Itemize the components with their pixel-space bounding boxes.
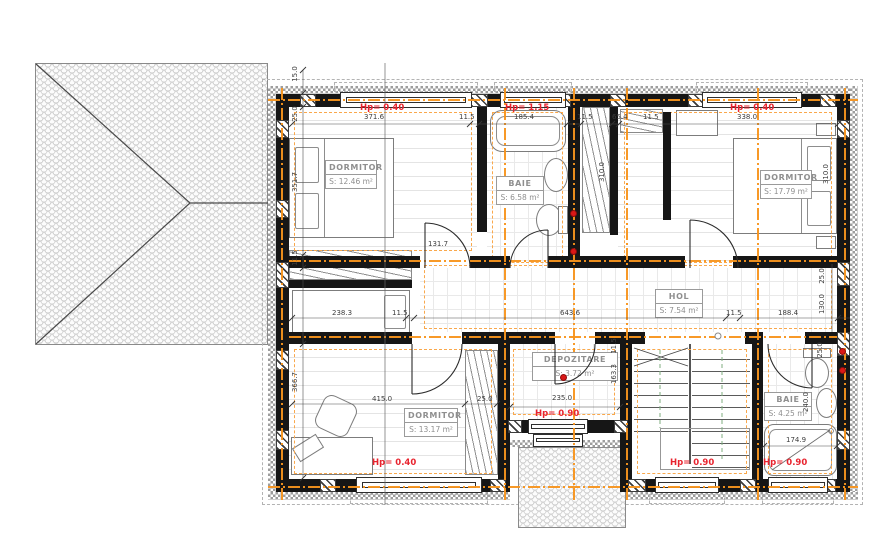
- dimension-label: 131.7: [428, 240, 448, 248]
- partition-wall: [289, 256, 420, 268]
- dimension-label: 415.0: [372, 395, 392, 403]
- dimension-label: 11.5: [726, 309, 742, 317]
- exterior-insulation: [268, 86, 276, 500]
- thermal-envelope: [294, 112, 472, 251]
- hp-label: Hp= 0.40: [360, 103, 404, 113]
- window: [655, 477, 719, 493]
- hp-label: Hp= 0.40: [730, 103, 774, 113]
- partition-wall: [663, 112, 671, 220]
- floor-plan-canvas: DORMITORS: 12.46 m² BAIES: 6.58 m² DORMI…: [0, 0, 892, 542]
- window: [528, 419, 588, 434]
- room-label-hol: HOLS: 7.54 m²: [655, 289, 703, 318]
- window: [768, 477, 828, 493]
- dimension-label: 11.5: [459, 113, 475, 121]
- partition-wall: [462, 332, 555, 344]
- outlet-dot: [839, 367, 846, 374]
- dimension-label: 25.0: [477, 395, 493, 403]
- thermal-envelope: [424, 265, 832, 329]
- axis-line: [268, 486, 858, 488]
- dimension-label: 11.5: [291, 250, 299, 266]
- dimension-label: 11.5: [392, 309, 408, 317]
- wall-hatch: [508, 420, 522, 433]
- room-label-dormitor-3: DORMITORS: 13.17 m²: [404, 408, 458, 437]
- room-label-dormitor-2: DORMITORS: 17.79 m²: [760, 170, 812, 199]
- exterior-insulation: [850, 86, 858, 500]
- dimension-label: 174.9: [786, 436, 806, 444]
- dimension-label: 15.0: [291, 66, 299, 82]
- dimension-label: 65.4: [612, 113, 628, 121]
- outlet-dot: [570, 248, 577, 255]
- hp-label: Hp= 0.90: [535, 409, 579, 419]
- dimension-label: 240.0: [802, 392, 810, 412]
- window-sill: [696, 82, 808, 92]
- dimension-label: 25.0: [291, 106, 299, 122]
- dimension-label: 188.4: [778, 309, 798, 317]
- dimension-label: 238.3: [332, 309, 352, 317]
- hp-label: Hp= 0.90: [670, 458, 714, 468]
- room-label-dormitor-1: DORMITORS: 12.46 m²: [325, 160, 377, 189]
- dimension-label: 235.0: [552, 394, 572, 402]
- partition-wall: [289, 332, 412, 344]
- outlet-dot: [839, 348, 846, 355]
- window: [356, 477, 482, 493]
- window-sill: [350, 494, 488, 504]
- hp-label: Hp= 1.15: [505, 103, 549, 113]
- partition-wall: [289, 280, 412, 288]
- roof-plan: [35, 63, 268, 345]
- thermal-envelope: [637, 349, 747, 474]
- hp-label: Hp= 0.90: [763, 458, 807, 468]
- hp-label: Hp= 0.40: [372, 458, 416, 468]
- dimension-label: 310.0: [822, 164, 830, 184]
- axis-line: [626, 86, 628, 500]
- axis-line: [281, 86, 283, 500]
- axis-line: [504, 86, 506, 500]
- room-label-depozitare: DEPOZITARES: 3.72 m²: [532, 352, 618, 381]
- dimension-label: 11.5: [577, 113, 593, 121]
- axis-line: [757, 86, 759, 500]
- window-sill: [762, 494, 834, 504]
- partition-wall: [610, 107, 618, 235]
- dimension-label: 371.6: [364, 113, 384, 121]
- partition-wall: [745, 332, 763, 344]
- partition-wall: [595, 332, 645, 344]
- partition-wall: [477, 107, 487, 232]
- outlet-dot: [570, 210, 577, 217]
- dimension-label: 11.5: [610, 338, 618, 354]
- dimension-label: 366.7: [291, 372, 299, 392]
- dimension-label: 643.6: [560, 309, 580, 317]
- window-sill: [649, 494, 725, 504]
- dimension-label: 185.4: [514, 113, 534, 121]
- dimension-label: 25.0: [816, 342, 824, 358]
- outlet-dot: [560, 374, 567, 381]
- dimension-label: 310.0: [598, 162, 606, 182]
- window-sill: [334, 82, 478, 92]
- dimension-label: 351.7: [291, 172, 299, 192]
- dimension-label: 11.5: [643, 113, 659, 121]
- partition-wall: [548, 256, 685, 268]
- partition-wall: [733, 256, 837, 268]
- dimension-label: 25.0: [818, 268, 826, 284]
- dimension-label: 130.0: [818, 294, 826, 314]
- thermal-envelope: [294, 349, 492, 474]
- axis-line: [289, 260, 837, 262]
- dimension-label: 163.3: [610, 364, 618, 384]
- axis-line: [573, 86, 575, 500]
- axis-line: [844, 86, 846, 500]
- dimension-label: 338.0: [737, 113, 757, 121]
- axis-line: [268, 99, 858, 101]
- axis-line: [289, 336, 837, 338]
- room-label-baie-1: BAIES: 6.58 m²: [496, 176, 544, 205]
- window: [533, 434, 583, 447]
